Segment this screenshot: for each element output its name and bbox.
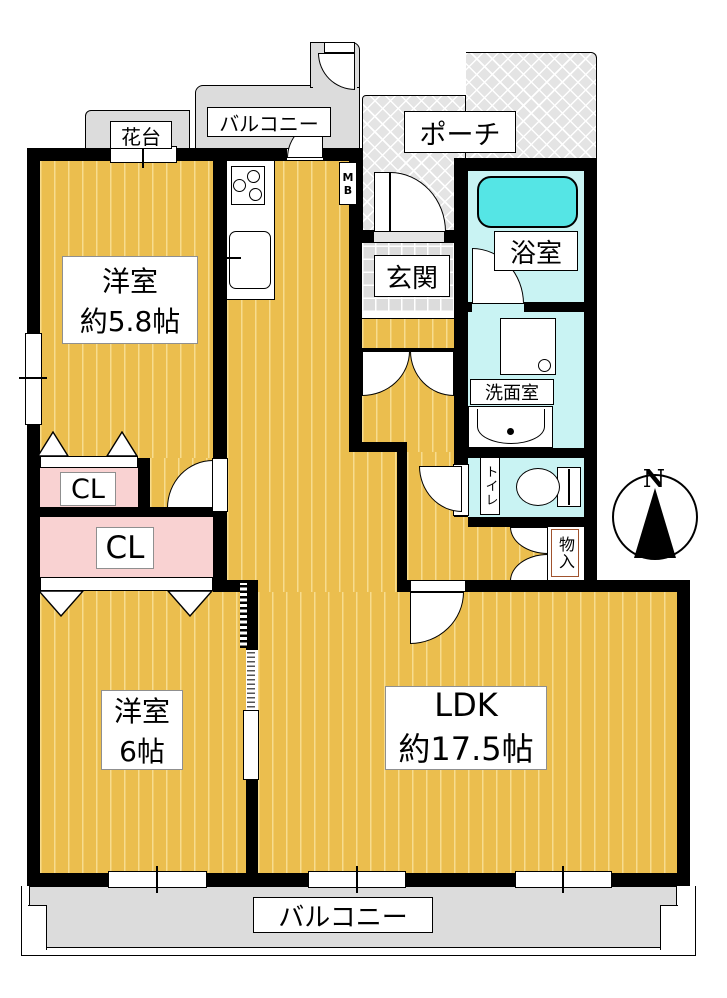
bifold-door-triangle	[106, 431, 138, 457]
room2-label-line1: 洋室	[114, 690, 170, 730]
sliding-door-track	[247, 650, 255, 712]
toilet-bowl-icon	[516, 468, 560, 506]
upper-balcony-label: バルコニー	[207, 107, 331, 137]
ldk-label: LDK約17.5帖	[385, 686, 547, 770]
bathroom-label: 浴室	[494, 231, 578, 271]
room1-label-line1: 洋室	[80, 260, 181, 300]
wall	[454, 448, 584, 458]
meter-box: MB	[339, 162, 357, 205]
entrance-step	[362, 312, 454, 319]
toilet-tank-line	[568, 469, 570, 505]
balcony-notch	[28, 905, 47, 950]
room2-label-line2: 6帖	[114, 730, 170, 770]
entrance-label: 玄関	[374, 255, 450, 297]
window-tick	[19, 377, 47, 379]
storage-label: 物入	[551, 529, 579, 577]
sliding-door-panel	[243, 710, 259, 780]
toilet-label: トイレ	[480, 457, 500, 515]
wall	[397, 452, 407, 580]
closet-small-label: CL	[60, 472, 116, 506]
lower-balcony-label: バルコニー	[253, 897, 433, 933]
floor-plan: バルコニー 花台 ポーチ	[0, 0, 727, 998]
hall-door-lintel	[362, 348, 454, 351]
closet-large-door-band	[40, 577, 213, 591]
wall	[454, 158, 597, 171]
ldk-door-leaf	[410, 580, 466, 592]
sliding-door-track	[240, 583, 247, 648]
window-tick	[356, 866, 358, 893]
flower-stand-label: 花台	[110, 121, 172, 149]
ldk-label-line2: 約17.5帖	[398, 724, 533, 770]
entrance-door-leaf	[374, 172, 390, 232]
wall	[246, 580, 258, 650]
stove-burner-icon	[233, 179, 246, 192]
washroom-label: 洗面室	[470, 379, 554, 405]
washing-machine-dial-icon	[538, 359, 551, 372]
bifold-door-triangle	[38, 590, 84, 617]
balcony-notch	[660, 905, 678, 950]
wall	[584, 158, 597, 592]
wall	[468, 517, 584, 527]
entrance-door-gap	[374, 231, 444, 242]
vanity-sink-icon	[477, 409, 545, 444]
room1-label-line2: 約5.8帖	[80, 300, 181, 340]
bathtub-icon	[477, 176, 578, 228]
kitchen-sink-icon	[229, 231, 271, 289]
room1-door-leaf	[212, 458, 228, 512]
window-tick	[562, 866, 564, 893]
dining-floor	[227, 452, 397, 592]
room1-label: 洋室約5.8帖	[62, 256, 198, 344]
window-tick	[156, 866, 158, 893]
wall	[27, 148, 40, 886]
wall	[349, 442, 407, 452]
stove-burner-icon	[249, 188, 262, 201]
vanity-drain-icon	[507, 428, 514, 435]
window	[25, 333, 42, 425]
faucet-icon	[221, 257, 241, 259]
compass-needle-icon	[634, 488, 676, 558]
bifold-door-triangle	[37, 431, 69, 457]
bifold-door-triangle	[167, 590, 213, 617]
compass-north-label: N	[643, 464, 665, 493]
room2-label: 洋室6帖	[101, 690, 183, 770]
balcony-door-leaf	[324, 42, 355, 53]
stove-burner-icon	[247, 170, 260, 183]
closet-large-label: CL	[96, 527, 154, 569]
wall	[677, 592, 690, 886]
wall	[27, 507, 227, 517]
wall	[246, 778, 258, 886]
ldk-label-line1: LDK	[398, 686, 533, 724]
porch-label: ポーチ	[404, 111, 516, 153]
closet-small-door-band	[40, 456, 138, 468]
